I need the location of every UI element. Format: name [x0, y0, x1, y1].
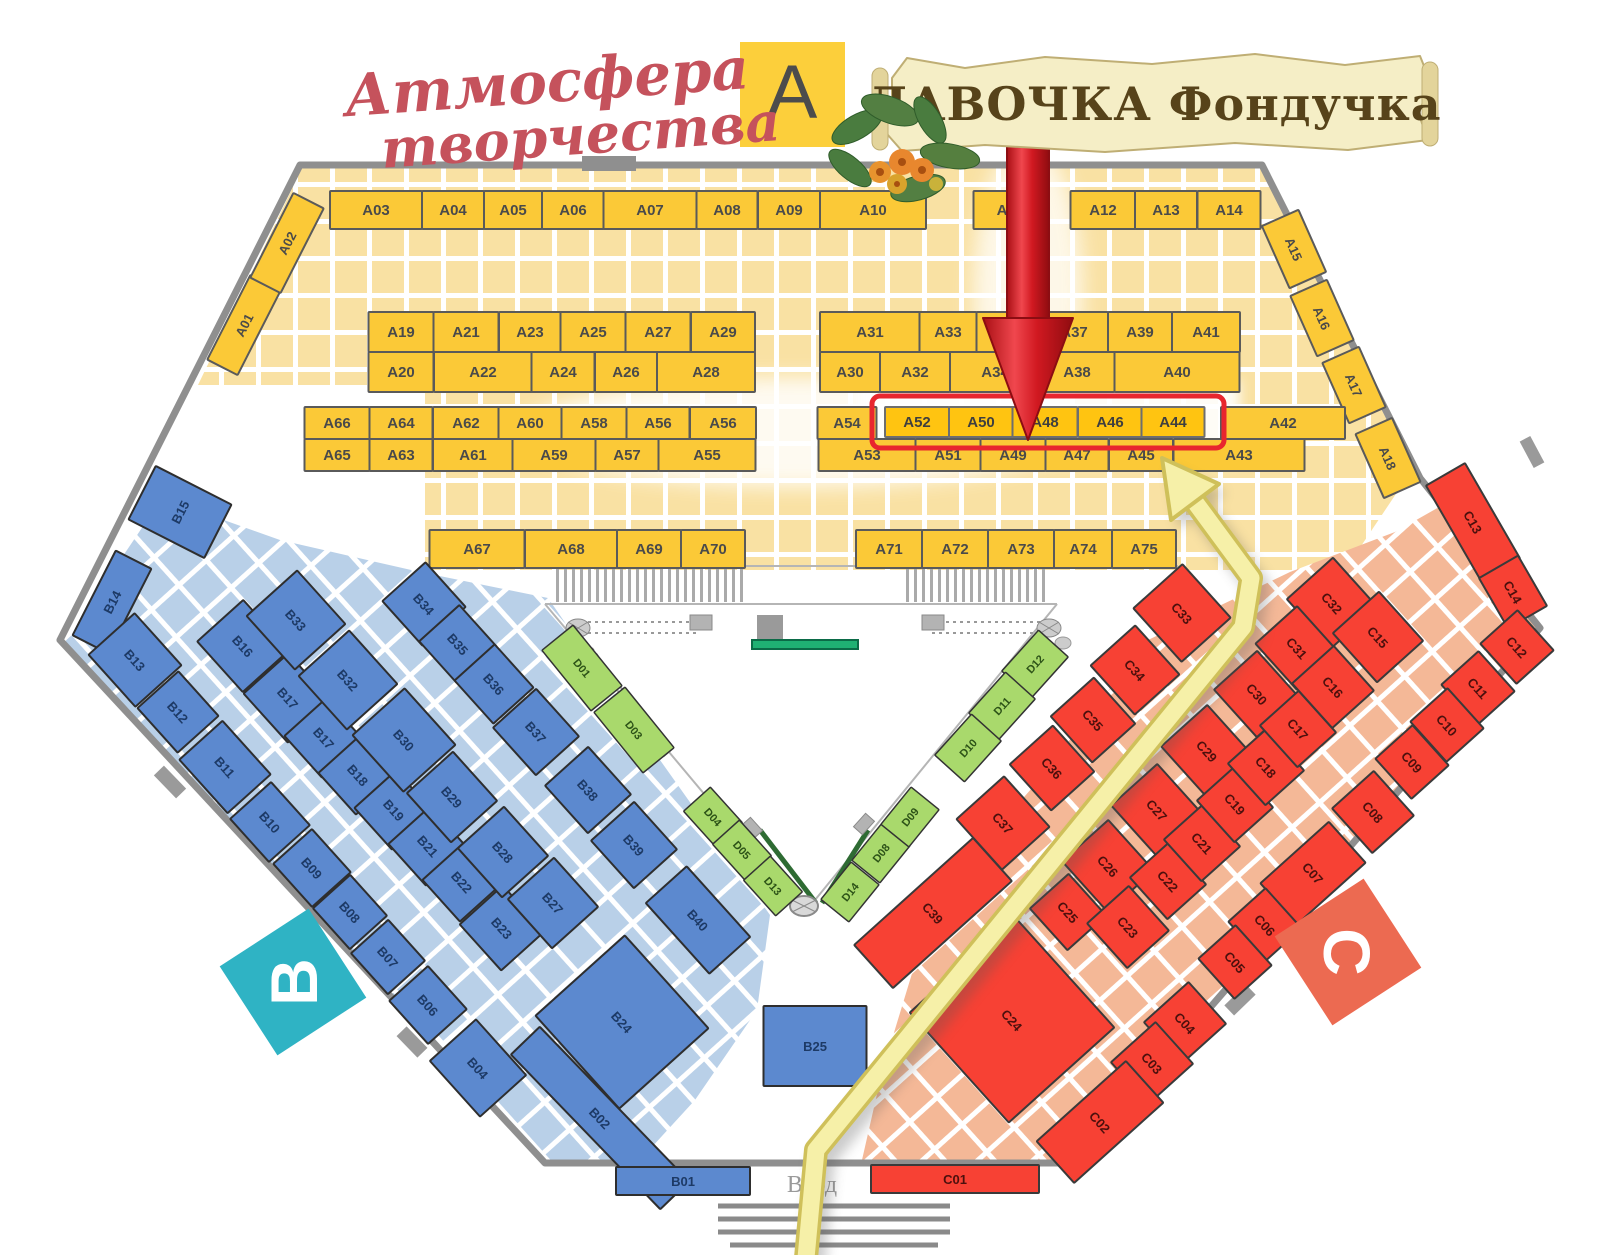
booth-A06[interactable]: A06 — [542, 191, 604, 229]
booth-A69[interactable]: A69 — [617, 530, 681, 568]
booth-A31[interactable]: A31 — [820, 312, 920, 352]
booth-A07[interactable]: A07 — [604, 191, 697, 229]
banner-title: ЛАВОЧКА Фондучка — [866, 77, 1441, 131]
booth-A70[interactable]: A70 — [681, 530, 745, 568]
booth-A43[interactable]: A43 — [1174, 439, 1305, 471]
booth-A67[interactable]: A67 — [430, 530, 525, 568]
booth-A14[interactable]: A14 — [1198, 191, 1261, 229]
booth-A51[interactable]: A51 — [916, 439, 981, 471]
booth-A08[interactable]: A08 — [697, 191, 758, 229]
booth-A61[interactable]: A61 — [433, 439, 513, 471]
booth-A13[interactable]: A13 — [1135, 191, 1197, 229]
booth-A71[interactable]: A71 — [856, 530, 922, 568]
booth-A60[interactable]: A60 — [499, 407, 562, 439]
booth-A56[interactable]: A56 — [627, 407, 690, 439]
booth-A53[interactable]: A53 — [819, 439, 916, 471]
booth-A41[interactable]: A41 — [1172, 312, 1240, 352]
marker-section-b-letter: B — [257, 958, 331, 1006]
booth-A21[interactable]: A21 — [434, 312, 499, 352]
booth-A50[interactable]: A50 — [949, 407, 1013, 437]
stage — [752, 615, 858, 649]
booth-A29[interactable]: A29 — [691, 312, 755, 352]
booth-A49[interactable]: A49 — [981, 439, 1046, 471]
booth-A52[interactable]: A52 — [885, 407, 949, 437]
booth-A62[interactable]: A62 — [433, 407, 499, 439]
booth-A56[interactable]: A56 — [690, 407, 756, 439]
booth-A28[interactable]: A28 — [657, 352, 755, 392]
booth-A55[interactable]: A55 — [659, 439, 756, 471]
booth-A30[interactable]: A30 — [820, 352, 880, 392]
booth-A66[interactable]: A66 — [305, 407, 370, 439]
booth-A40[interactable]: A40 — [1115, 352, 1240, 392]
booth-A68[interactable]: A68 — [525, 530, 617, 568]
page-title: Атмосфера творчества — [338, 32, 782, 183]
booth-A39[interactable]: A39 — [1108, 312, 1172, 352]
booth-A46[interactable]: A46 — [1078, 407, 1142, 437]
booth-A20[interactable]: A20 — [369, 352, 434, 392]
booth-A03[interactable]: A03 — [330, 191, 422, 229]
booth-B01[interactable]: B01 — [616, 1167, 750, 1195]
booth-A26[interactable]: A26 — [595, 352, 657, 392]
booth-A09[interactable]: A09 — [758, 191, 820, 229]
right-wall-door-2 — [1520, 436, 1545, 468]
booth-A58[interactable]: A58 — [562, 407, 627, 439]
booth-A44[interactable]: A44 — [1142, 407, 1205, 437]
booth-A24[interactable]: A24 — [532, 352, 595, 392]
marker-section-c-letter: C — [1310, 928, 1384, 976]
booth-A54[interactable]: A54 — [818, 407, 877, 439]
booth-A19[interactable]: A19 — [369, 312, 434, 352]
booth-A25[interactable]: A25 — [561, 312, 626, 352]
booth-B25[interactable]: B25 — [764, 1006, 867, 1086]
booth-A65[interactable]: A65 — [305, 439, 370, 471]
booth-A74[interactable]: A74 — [1054, 530, 1112, 568]
banner-scroll: ЛАВОЧКА Фондучка — [866, 54, 1441, 152]
booth-A33[interactable]: A33 — [920, 312, 977, 352]
booth-A47[interactable]: A47 — [1046, 439, 1109, 471]
booth-A05[interactable]: A05 — [484, 191, 542, 229]
booth-A42[interactable]: A42 — [1221, 407, 1345, 439]
booth-A22[interactable]: A22 — [434, 352, 532, 392]
booth-A57[interactable]: A57 — [596, 439, 659, 471]
booth-A32[interactable]: A32 — [880, 352, 950, 392]
booth-A72[interactable]: A72 — [922, 530, 988, 568]
booth-A75[interactable]: A75 — [1112, 530, 1176, 568]
booth-A59[interactable]: A59 — [513, 439, 596, 471]
booth-A63[interactable]: A63 — [370, 439, 433, 471]
booth-A12[interactable]: A12 — [1071, 191, 1136, 229]
booth-C01[interactable]: C01 — [871, 1165, 1039, 1193]
booth-A04[interactable]: A04 — [422, 191, 484, 229]
booth-A73[interactable]: A73 — [988, 530, 1054, 568]
booth-A23[interactable]: A23 — [499, 312, 561, 352]
booth-A27[interactable]: A27 — [626, 312, 691, 352]
booth-A64[interactable]: A64 — [370, 407, 433, 439]
floor-plan: Вход A01A02A03A04A05A06A07A08A09A10A11A1… — [0, 0, 1600, 1255]
